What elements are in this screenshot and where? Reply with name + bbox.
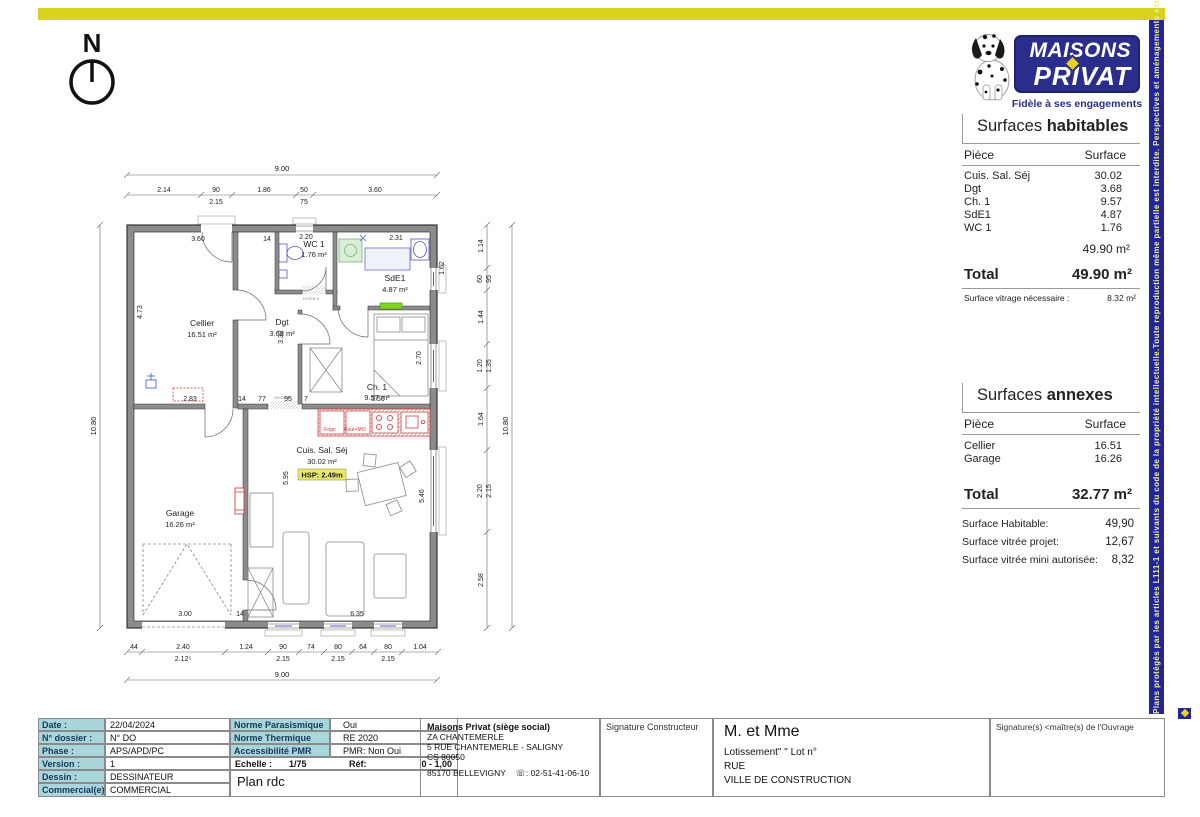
logo-line1: MAISONS xyxy=(1029,39,1131,63)
dim: 3.60 xyxy=(191,236,205,243)
room-name: Dgt xyxy=(275,317,289,327)
logo-line2: PRIVAT xyxy=(1034,61,1131,92)
scale-value: 1/75 xyxy=(289,759,307,769)
room-area: 16.26 m² xyxy=(165,520,195,529)
total-row: Total 32.77 m² xyxy=(962,484,1140,509)
total-value: 32.77 m² xyxy=(1072,486,1138,503)
threshold xyxy=(302,286,326,294)
client-block: M. et Mme Lotissement" " Lot n° RUE VILL… xyxy=(713,718,990,797)
summary-row: Surface Habitable:49,90 xyxy=(962,518,1134,530)
info-value: 22/04/2024 xyxy=(105,718,230,731)
table-row: SdE14.87 xyxy=(962,209,1140,222)
norme-label: Accessibilité PMR xyxy=(230,744,330,757)
dim: 3.60 xyxy=(368,187,382,194)
dim: 2.14 xyxy=(157,187,171,194)
dim: 2.70 xyxy=(416,351,423,365)
hsp-label: HSP: 2.49m xyxy=(301,471,343,480)
surface-summary: Surface Habitable:49,90 Surface vitrée p… xyxy=(962,518,1134,572)
dim: 1.14 xyxy=(478,239,485,253)
company-phone: ☏: 02-51-41-06-10 xyxy=(515,768,589,778)
dim: 4.73 xyxy=(137,305,144,319)
oven-label: Four+MO xyxy=(344,427,365,433)
dim: 2.40 xyxy=(176,644,190,651)
vent-icon xyxy=(380,303,402,309)
copyright-note: Plans protégés par les articles L111-1 e… xyxy=(1149,0,1164,714)
room-area: 4.87 m² xyxy=(382,285,408,294)
client-line: VILLE DE CONSTRUCTION xyxy=(724,774,979,788)
dim: 2.83 xyxy=(183,396,197,403)
dim: 1.35 xyxy=(486,359,493,373)
fridge-label: Frigo xyxy=(324,427,336,433)
dim: 64 xyxy=(359,644,367,651)
top-yellow-band xyxy=(38,8,1165,20)
table-row: Dgt3.68 xyxy=(962,183,1140,196)
info-value: COMMERCIAL xyxy=(105,783,230,797)
dim: 1.20 xyxy=(477,359,484,373)
dim: 14 xyxy=(238,396,246,403)
dim: 90 xyxy=(279,644,287,651)
dim: 5.46 xyxy=(419,489,426,503)
plan-sheet: Plans protégés par les articles L111-1 e… xyxy=(0,0,1200,817)
col-piece: Pièce xyxy=(964,417,994,431)
info-label: Date : xyxy=(38,718,105,731)
table-row: Cuis. Sal. Séj30.02 xyxy=(962,170,1140,183)
table-row: Garage16.26 xyxy=(962,453,1140,466)
signature-constructeur-box: Signature Constructeur xyxy=(600,718,713,797)
total-label: Total xyxy=(964,486,999,503)
mini-logo-icon xyxy=(1178,708,1191,719)
dim: 9.00 xyxy=(275,670,290,679)
dim: 1.86 xyxy=(257,187,271,194)
dim: 3.00 xyxy=(178,611,192,618)
dim: 95 xyxy=(284,396,292,403)
logo-tagline: Fidèle à ses engagements xyxy=(1010,98,1144,110)
info-label: Dessin : xyxy=(38,770,105,783)
info-value: APS/APD/PC xyxy=(105,744,230,757)
dim: 1.44 xyxy=(478,310,485,324)
company-line: ZA CHANTEMERLE xyxy=(427,732,593,742)
col-piece: Pièce xyxy=(964,148,994,162)
dim: 2.31 xyxy=(389,235,403,242)
dim: 44 xyxy=(130,644,138,651)
dim: 2.20 xyxy=(477,484,484,498)
company-block: Maisons Privat (siège social) ZA CHANTEM… xyxy=(420,718,600,797)
room-area: 1.76 m² xyxy=(301,250,327,259)
surfaces-annexes-panel: Surfaces annexes Pièce Surface Cellier16… xyxy=(962,383,1140,509)
dim: 2.15 xyxy=(331,656,345,663)
total-label: Total xyxy=(964,266,999,283)
bathtub-icon xyxy=(365,248,410,270)
dim: 1.04 xyxy=(413,644,427,651)
dim: 6.35 xyxy=(350,611,364,618)
room-name: Ch. 1 xyxy=(367,382,388,392)
dim: 95 xyxy=(486,275,493,283)
dim: 14 xyxy=(263,236,271,243)
dim: 5.95 xyxy=(283,471,290,485)
info-value: DESSINATEUR xyxy=(105,770,230,783)
room-name: Cuis. Sal. Séj xyxy=(296,445,347,455)
room-area: 16.51 m² xyxy=(187,330,217,339)
panel-title: Surfaces habitables xyxy=(962,114,1140,144)
total-row: Total 49.90 m² xyxy=(962,264,1140,289)
dim: 90 xyxy=(212,187,220,194)
north-arrow: N xyxy=(60,28,124,112)
info-label: Commercial(e) : xyxy=(38,783,105,797)
company-line: CS 80050 xyxy=(427,752,593,762)
dim: 75 xyxy=(300,199,308,206)
dim: 10.80 xyxy=(89,417,98,436)
north-label: N xyxy=(83,28,102,58)
norme-label: Norme Parasismique xyxy=(230,718,330,731)
dim: 2.20 xyxy=(299,234,313,241)
norme-label: Norme Thermique xyxy=(230,731,330,744)
company-city: 85170 BELLEVIGNY xyxy=(427,768,506,778)
room-name: SdE1 xyxy=(385,273,406,283)
dim: 2.58 xyxy=(478,573,485,587)
company-name: Maisons Privat (siège social) xyxy=(427,722,593,732)
info-value: N° DO xyxy=(105,731,230,744)
dim: 77 xyxy=(258,396,266,403)
dim: 80 xyxy=(384,644,392,651)
table-header: Pièce Surface xyxy=(962,413,1140,435)
dim: 7 xyxy=(304,396,308,403)
summary-row: Surface vitrée projet:12,67 xyxy=(962,536,1134,548)
surfaces-habitables-panel: Surfaces habitables Pièce Surface Cuis. … xyxy=(962,114,1140,303)
table-row: WC 11.76 xyxy=(962,222,1140,235)
client-line: RUE xyxy=(724,760,979,774)
col-surface: Surface xyxy=(1085,148,1126,162)
title-block: Date : 22/04/2024 N° dossier : N° DO Pha… xyxy=(38,718,1165,797)
dim: 50 xyxy=(300,187,308,194)
subtotal: 49.90 m² xyxy=(962,242,1140,256)
dim: 10.80 xyxy=(501,417,510,436)
glazing-note: Surface vitrage nécessaire :8.32 m² xyxy=(962,293,1140,303)
info-label: N° dossier : xyxy=(38,731,105,744)
dim: 9.00 xyxy=(275,164,290,173)
dim: 1.64 xyxy=(478,412,485,426)
dim: 3.56 xyxy=(371,396,385,403)
client-title: M. et Mme xyxy=(724,723,979,741)
door-code: HO/EB d xyxy=(303,296,319,301)
shower-icon xyxy=(339,239,362,262)
company-line: 5 RUE CHANTEMERLE - SALIGNY xyxy=(427,742,593,752)
dim: 2.15 xyxy=(381,656,395,663)
dim: 2.15 xyxy=(486,484,493,498)
room-name: Cellier xyxy=(190,318,214,328)
floor-plan-svg: Cellier 16.51 m² WC 1 1.76 m² SdE1 4.87 … xyxy=(30,140,560,710)
dim: 80 xyxy=(334,644,342,651)
info-value: 1 xyxy=(105,757,230,770)
dim: 1.24 xyxy=(239,644,253,651)
dim: 60 xyxy=(477,275,484,283)
table-header: Pièce Surface xyxy=(962,144,1140,166)
panel-title: Surfaces annexes xyxy=(962,383,1140,413)
dim: 14 xyxy=(236,611,244,618)
signature-owner-box: Signature(s) <maître(s) de l'Ouvrage xyxy=(990,718,1165,797)
table-row: Ch. 19.57 xyxy=(962,196,1140,209)
hob-icon xyxy=(372,412,398,433)
water-heater-icon xyxy=(235,488,244,514)
total-value: 49.90 m² xyxy=(1072,266,1138,283)
info-label: Version : xyxy=(38,757,105,770)
dalmatian-dog-icon xyxy=(962,28,1020,102)
client-line: Lotissement" " Lot n° xyxy=(724,746,979,760)
info-label: Phase : xyxy=(38,744,105,757)
dim: 2.12⁵ xyxy=(175,656,192,663)
sink-icon xyxy=(401,412,428,433)
copyright-side-strip: Plans protégés par les articles L111-1 e… xyxy=(1149,20,1164,714)
scale-label: Echelle : xyxy=(235,759,272,769)
col-surface: Surface xyxy=(1085,417,1126,431)
table-row: Cellier16.51 xyxy=(962,440,1140,453)
dim: 3.32 xyxy=(278,330,285,344)
dim: 2.15 xyxy=(209,199,223,206)
summary-row: Surface vitrée mini autorisée:8,32 xyxy=(962,554,1134,566)
dim: 74 xyxy=(307,644,315,651)
dim: 2.15 xyxy=(276,656,290,663)
dim: 1.62 xyxy=(439,261,446,275)
room-area: 30.02 m² xyxy=(307,457,337,466)
ref-label: Réf: xyxy=(349,759,367,769)
room-name: Garage xyxy=(166,508,195,518)
